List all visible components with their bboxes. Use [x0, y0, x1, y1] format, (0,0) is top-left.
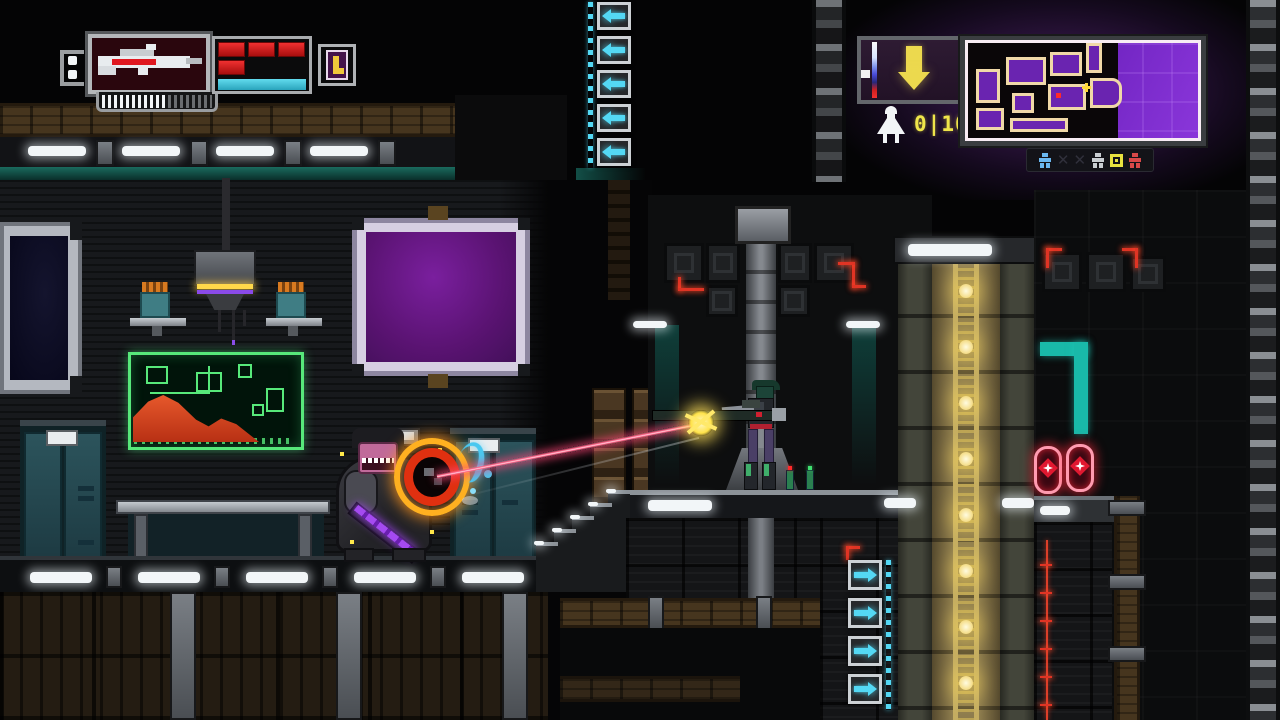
objective-target-icon — [1110, 154, 1123, 167]
objective-separator: | — [928, 112, 942, 136]
bench-leg — [134, 514, 148, 558]
locker-name-plate — [46, 430, 78, 446]
player-leg — [748, 429, 758, 463]
minimap-legend: ✕ ✕ — [1026, 148, 1154, 172]
minimap-objective-marker — [1085, 83, 1088, 92]
impact-core-debris — [434, 478, 442, 485]
shaft-lamp — [959, 452, 973, 466]
health-block — [218, 60, 245, 75]
wall-crate — [706, 243, 740, 283]
minimap-room — [1012, 93, 1034, 113]
locker-door — [24, 432, 62, 562]
chain-track-top — [812, 0, 846, 182]
window-notch — [70, 222, 82, 240]
shaft-lamp — [959, 340, 973, 354]
screen-circuit-line — [150, 392, 210, 394]
rifle-sprite-rail — [120, 49, 154, 56]
shelf-board — [130, 318, 186, 326]
beam-clamp — [648, 596, 664, 630]
under-floor-crates — [0, 592, 564, 720]
cyan-left-arrow-icon — [602, 111, 611, 125]
shaft-side-column — [898, 262, 932, 720]
stair-tip — [534, 541, 544, 545]
health-block — [248, 42, 275, 57]
rifle-sprite-stock — [98, 66, 116, 75]
health-block — [278, 42, 305, 57]
cyan-arrow-shaft — [854, 648, 868, 654]
wall-crate — [778, 285, 810, 317]
purple-window-glass — [366, 232, 516, 362]
teal-door-side — [1074, 342, 1088, 434]
window-mount — [428, 206, 448, 220]
window-notch — [518, 218, 530, 230]
shelf-board — [266, 318, 322, 326]
boot-icon-foot — [333, 68, 344, 74]
red-tick — [1040, 620, 1052, 622]
indicator-post — [806, 470, 814, 490]
arrow-dash-column — [886, 560, 891, 710]
smoke-puff — [462, 496, 478, 505]
ceiling-beam — [0, 103, 462, 137]
shelf-device — [140, 292, 170, 318]
chain-track-right — [1246, 0, 1280, 720]
indicator-post — [786, 470, 794, 490]
ladder — [953, 262, 979, 720]
dark-strut — [608, 180, 630, 300]
spark — [430, 530, 434, 534]
window-notch — [352, 218, 364, 230]
minimap-room — [976, 69, 1000, 103]
lower-beam2 — [560, 676, 740, 702]
enemy-foot — [344, 548, 374, 562]
ship-foot — [883, 134, 887, 143]
rifle-stock — [772, 408, 786, 421]
minimap-room — [1086, 43, 1102, 73]
red-pipe — [1135, 248, 1138, 268]
boot-accent — [764, 464, 769, 476]
floor-light — [30, 572, 92, 583]
cyan-right-arrow-icon — [868, 568, 877, 582]
shaft-lamp — [959, 284, 973, 298]
shelf-device — [276, 292, 306, 318]
wall-bracket — [378, 140, 396, 166]
red-tick — [1040, 648, 1052, 650]
lamp-drip-tip — [232, 340, 235, 345]
shelf-bracket — [152, 326, 162, 336]
lamp-rod — [222, 178, 230, 254]
screen-circuit-rect — [266, 388, 284, 412]
bench-leg — [298, 514, 312, 558]
pillar-head — [735, 206, 791, 244]
stair-tip — [588, 502, 598, 506]
cyan-arrow-shaft — [611, 47, 625, 53]
beam-clamp — [756, 596, 772, 630]
ammo-ticks-dim — [168, 95, 212, 108]
locker-vent — [502, 500, 518, 505]
red-tick-line — [1046, 540, 1048, 720]
shaft-lamp — [959, 620, 973, 634]
bench-top — [116, 500, 330, 514]
floor-pillar — [170, 592, 196, 720]
red-pipe — [852, 285, 866, 288]
energy-bar — [218, 79, 306, 90]
floor-bracket — [214, 566, 230, 588]
game-viewport[interactable]: 0|10 ✕ ✕ — [0, 0, 1280, 720]
beam-clamp — [1108, 646, 1146, 662]
red-pipe — [846, 546, 849, 560]
locker-vent — [78, 540, 94, 545]
wall-bracket — [190, 140, 208, 166]
cross-mark-icon: ✕ — [1074, 152, 1087, 168]
bench-shadow — [128, 514, 324, 556]
arrow-dash-column — [588, 2, 593, 168]
floor-edge-light — [884, 498, 916, 508]
floor-pillar — [502, 592, 528, 720]
lamp-glow-strip — [197, 284, 253, 289]
ship-nose — [885, 106, 897, 114]
spark — [340, 452, 344, 456]
platform-light — [648, 500, 712, 511]
window-mount — [428, 374, 448, 388]
wall-light — [633, 321, 667, 328]
floor-light — [462, 572, 524, 583]
lamp-drip — [232, 310, 235, 342]
beam-column — [1114, 496, 1140, 720]
cyan-arrow-shaft — [854, 572, 868, 578]
bracket-dot — [68, 70, 77, 79]
cyan-right-arrow-icon — [868, 644, 877, 658]
floor-edge-light — [1002, 498, 1034, 508]
minimap-room — [1050, 52, 1082, 76]
beam-clamp — [1108, 500, 1146, 516]
red-tick — [1040, 592, 1052, 594]
red-pipe — [838, 262, 855, 265]
pillar-lower — [748, 518, 774, 602]
locker-vent — [462, 510, 478, 515]
minimap-player-marker — [1056, 93, 1061, 98]
enemy-teeth — [362, 458, 394, 463]
minimap-room — [1090, 78, 1122, 108]
wall-bracket — [284, 140, 302, 166]
wall-crate — [778, 243, 812, 283]
ship-fin — [877, 118, 887, 134]
wall-crate — [706, 285, 738, 317]
shaft-lamp — [959, 676, 973, 690]
indicator-post-lamp — [788, 466, 792, 470]
cyan-left-arrow-icon — [602, 9, 611, 23]
red-pipe — [1046, 248, 1049, 268]
wall-crate — [664, 243, 704, 283]
floor-bracket — [106, 566, 122, 588]
objective-current: 0 — [914, 112, 928, 136]
floor-bracket — [430, 566, 446, 588]
red-tick — [1040, 564, 1052, 566]
minimap-room — [1006, 57, 1046, 85]
bracket-dot — [68, 56, 77, 65]
floor-pillar — [336, 592, 362, 720]
wall-bracket — [96, 140, 114, 166]
floor-light — [138, 572, 200, 583]
screen-circuit-rect — [146, 366, 168, 384]
ceiling-corner — [455, 95, 567, 181]
lamp-body — [194, 250, 256, 286]
indicator-post-lamp — [808, 466, 812, 470]
window-notch — [70, 376, 82, 394]
device-pins — [142, 282, 168, 292]
ship-icon — [874, 106, 908, 144]
beam-clamp — [1108, 574, 1146, 590]
teal-column — [655, 325, 679, 485]
lamp-drip — [243, 310, 246, 326]
floor-light — [354, 572, 416, 583]
spark — [350, 540, 354, 544]
rifle-red-dot — [756, 412, 762, 417]
lintel-light — [908, 244, 992, 256]
stair-tip — [552, 528, 562, 532]
red-pipe — [678, 288, 704, 291]
cyan-arrow-shaft — [611, 115, 625, 121]
window-notch — [352, 364, 364, 376]
lamp-drip — [218, 310, 221, 332]
boot-accent — [746, 464, 751, 476]
ally-figure-icon — [1037, 152, 1053, 168]
left-window-glass — [10, 236, 68, 380]
impact-ring-inner — [404, 448, 460, 506]
player-leg — [764, 429, 774, 463]
cross-mark-icon: ✕ — [1057, 152, 1070, 168]
ship-foot — [895, 134, 899, 143]
screen-circuit-rect — [252, 404, 264, 416]
ammo-ticks-bright — [102, 95, 168, 108]
screen-circuit-rect — [238, 364, 252, 378]
minimap-room — [1010, 118, 1068, 132]
screen-circuit-line — [208, 366, 210, 394]
ledge-light — [1040, 506, 1070, 515]
ceiling-light — [28, 146, 86, 156]
cyan-right-arrow-icon — [868, 682, 877, 696]
teal-column — [852, 325, 876, 485]
stair-step — [536, 542, 558, 592]
cyan-left-arrow-icon — [602, 43, 611, 57]
rifle-sprite-grip — [138, 67, 148, 75]
neutral-figure-icon — [1090, 152, 1106, 168]
locker-vent — [78, 496, 94, 501]
shaft-lamp — [959, 508, 973, 522]
minimap-room — [1048, 84, 1086, 110]
down-arrow-head — [898, 72, 930, 90]
rifle-scope — [742, 400, 760, 408]
minimap-room — [976, 108, 1004, 130]
device-pins — [278, 282, 304, 292]
teal-floor-glint — [576, 168, 646, 180]
enemy-figure-icon — [1127, 152, 1143, 168]
red-tick — [1040, 676, 1052, 678]
cyan-arrow-shaft — [611, 13, 625, 19]
shaft-side-column — [1000, 262, 1034, 720]
floor-bracket — [322, 566, 338, 588]
red-tick — [1040, 704, 1052, 706]
lamp-purple-strip — [197, 290, 253, 294]
stair-tip — [570, 515, 580, 519]
blue-splash-drop — [484, 470, 492, 478]
rifle-sprite-sight — [146, 44, 156, 50]
ceiling-light — [122, 146, 180, 156]
cyan-arrow-shaft — [854, 610, 868, 616]
ceiling-light — [310, 146, 368, 156]
cyan-left-arrow-icon — [602, 145, 611, 159]
cyan-left-arrow-icon — [602, 77, 611, 91]
wall-crate — [1086, 252, 1126, 292]
cyan-right-arrow-icon — [868, 606, 877, 620]
window-notch — [518, 364, 530, 376]
cyan-arrow-shaft — [611, 149, 625, 155]
impact-core-debris — [424, 468, 434, 476]
rifle-sprite-core — [112, 59, 156, 65]
down-arrow-icon — [906, 46, 922, 72]
ship-fin — [895, 118, 905, 134]
vertical-gauge — [872, 42, 877, 98]
rifle-sprite-barrel — [186, 58, 202, 64]
locker-vent — [78, 486, 94, 491]
ceiling-light — [216, 146, 274, 156]
gauge-marker — [861, 70, 870, 78]
shelf-bracket — [288, 326, 298, 336]
shaft-lamp — [959, 564, 973, 578]
floor-light — [246, 572, 308, 583]
cyan-arrow-shaft — [854, 686, 868, 692]
cyan-arrow-shaft — [611, 81, 625, 87]
health-block — [218, 42, 245, 57]
enemy-foot — [392, 548, 426, 562]
stair-tip — [606, 489, 616, 493]
shaft-lamp — [959, 396, 973, 410]
wall-light — [846, 321, 880, 328]
